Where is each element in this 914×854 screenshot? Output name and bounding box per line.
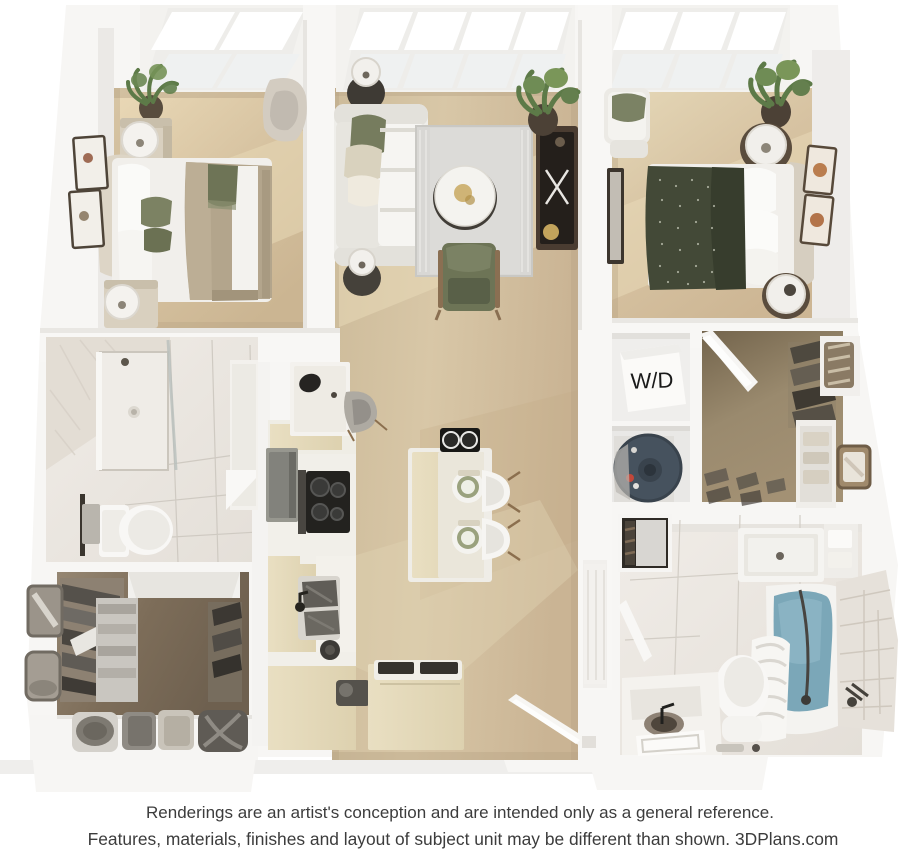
svg-text:Features, materials, finishes: Features, materials, finishes and layout… — [88, 829, 839, 849]
svg-text:W/D: W/D — [630, 367, 674, 393]
svg-text:Renderings are an artist's con: Renderings are an artist's conception an… — [146, 803, 774, 822]
